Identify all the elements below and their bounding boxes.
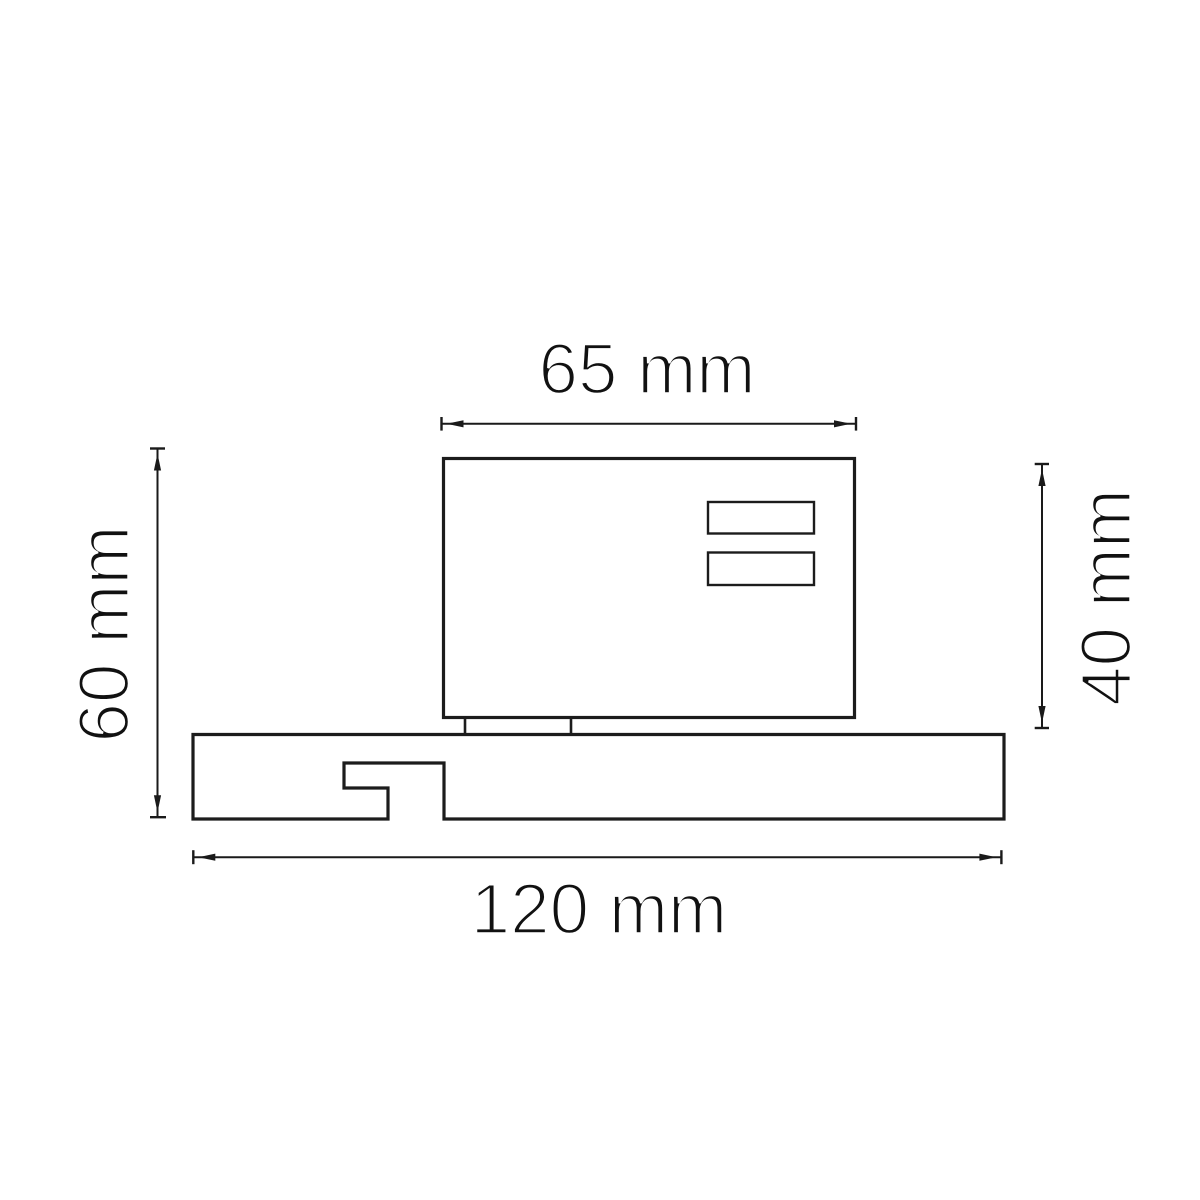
svg-text:65 mm: 65 mm — [539, 331, 756, 410]
svg-text:120 mm: 120 mm — [471, 871, 727, 950]
svg-text:40 mm: 40 mm — [1068, 489, 1147, 706]
svg-text:60 mm: 60 mm — [66, 526, 145, 743]
